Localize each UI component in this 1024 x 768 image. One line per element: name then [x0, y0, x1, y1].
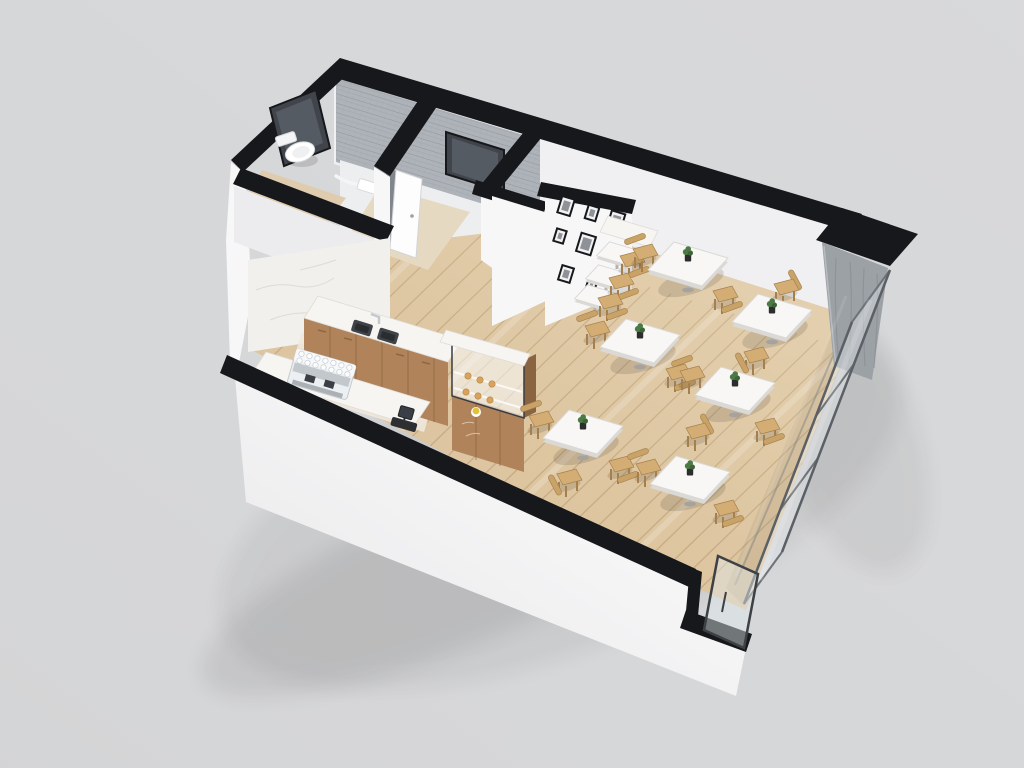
floorplan-stage: [0, 0, 1024, 768]
yellow-cake: [473, 408, 480, 415]
pastry-display-case: [440, 330, 536, 472]
restroom-door: [390, 170, 422, 258]
cafe-floorplan-render: [0, 0, 1024, 768]
door-handle: [410, 214, 414, 218]
